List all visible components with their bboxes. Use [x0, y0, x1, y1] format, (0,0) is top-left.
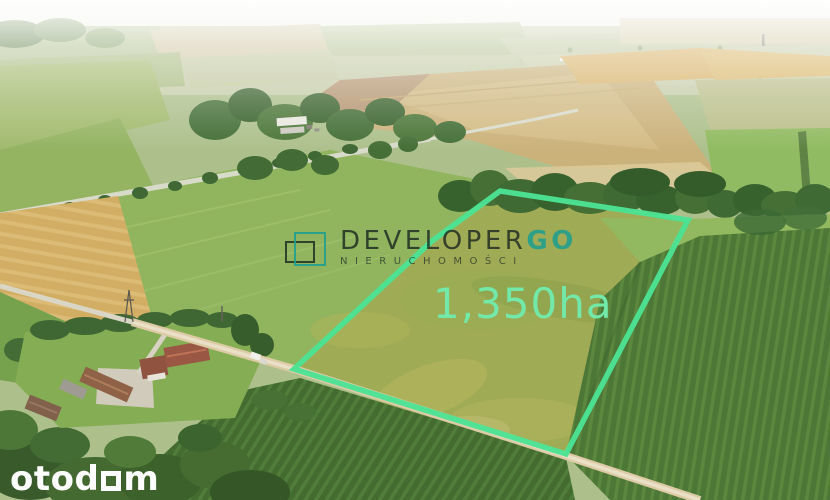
wash-overlay — [0, 0, 830, 500]
otodom-logo-suffix: m — [123, 459, 159, 499]
otodom-logo: otodm — [10, 459, 159, 499]
otodom-square-icon — [101, 471, 121, 491]
otodom-logo-prefix: otod — [10, 459, 99, 499]
aerial-photo — [0, 0, 830, 500]
